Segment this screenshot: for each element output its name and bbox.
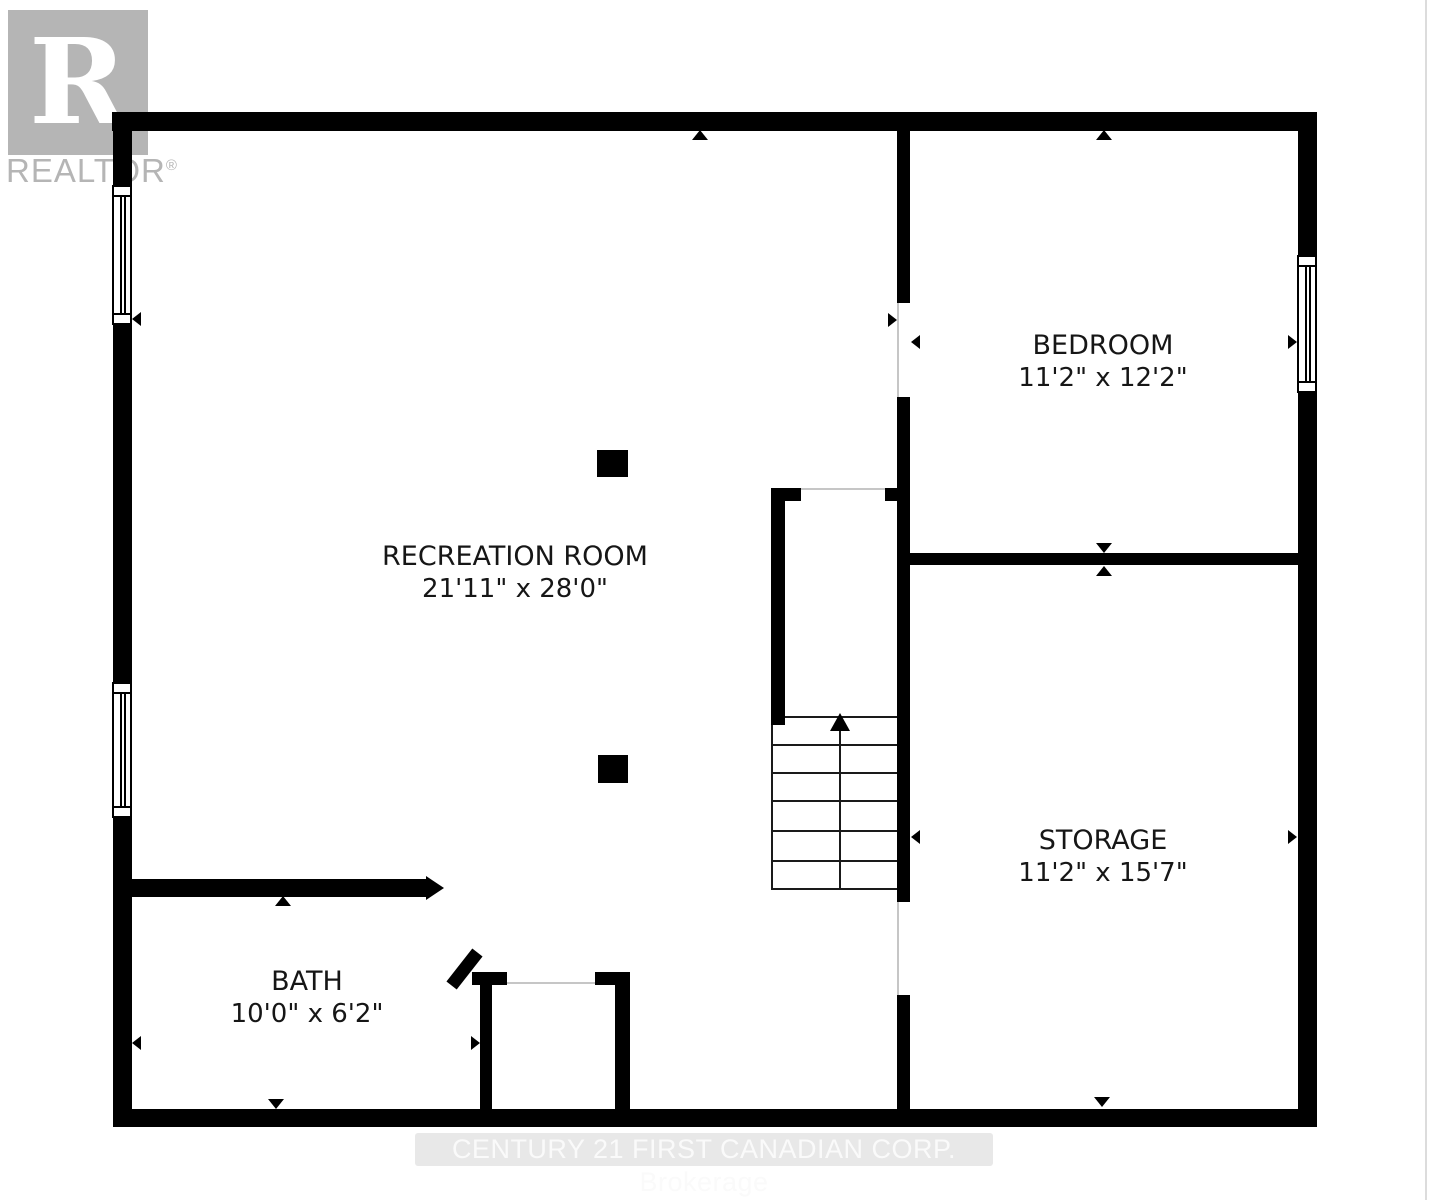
stairwell-opening	[801, 488, 885, 490]
brokerage-watermark: CENTURY 21 FIRST CANADIAN CORP. Brokerag…	[415, 1133, 993, 1166]
outer-wall-right-lower	[1298, 393, 1317, 1127]
support-column	[597, 450, 628, 477]
closet-top-right-stub	[595, 972, 630, 985]
dimension-marker-right-icon	[471, 1036, 480, 1050]
closet-right-wall	[615, 972, 630, 1109]
dimension-marker-down-icon	[268, 1099, 284, 1109]
stairwell-top-wall-right	[885, 488, 897, 501]
room-label-bath: BATH 10'0" x 6'2"	[157, 966, 457, 1030]
dimension-marker-up-icon	[275, 896, 291, 906]
dimension-marker-left-icon	[132, 312, 141, 326]
floor-plan: R REALTOR®	[0, 0, 1431, 1200]
stair-tread-line	[771, 800, 897, 802]
outer-wall-right-upper	[1298, 112, 1317, 255]
central-wall-upper	[897, 131, 910, 303]
outer-wall-left-middle	[113, 325, 132, 682]
outer-wall-top	[112, 112, 1317, 131]
window-pane-line	[124, 196, 126, 314]
window-sill-icon	[1299, 381, 1315, 383]
dimension-marker-left-icon	[132, 1036, 141, 1050]
window-sill-icon	[114, 806, 130, 808]
bath-top-wall	[131, 879, 426, 897]
dimension-marker-up-icon	[1096, 566, 1112, 576]
realtor-logo-wordmark: REALTOR®	[6, 152, 176, 190]
room-dimensions: 10'0" x 6'2"	[157, 998, 457, 1030]
stair-tread-line	[771, 860, 897, 862]
support-column	[598, 755, 628, 783]
room-dimensions: 11'2" x 12'2"	[953, 362, 1253, 394]
stair-tread-line	[771, 888, 897, 890]
stair-tread-line	[771, 744, 897, 746]
window-left-upper	[112, 185, 132, 325]
window-pane-line	[120, 693, 122, 807]
room-label-recreation: RECREATION ROOM 21'11" x 28'0"	[285, 541, 745, 605]
stair-tread-line	[771, 772, 897, 774]
dimension-marker-down-icon	[1096, 543, 1112, 553]
registered-trademark-icon: ®	[166, 157, 178, 174]
room-label-storage: STORAGE 11'2" x 15'7"	[953, 825, 1253, 889]
room-dimensions: 21'11" x 28'0"	[285, 573, 745, 605]
bath-wall-arrow-tip-icon	[426, 876, 444, 900]
stairwell-top-wall-left	[771, 488, 801, 501]
central-wall-lower	[897, 995, 910, 1109]
storage-door-opening	[897, 902, 899, 995]
outer-wall-bottom	[113, 1109, 1317, 1127]
stairs-up-arrow-icon	[830, 713, 850, 731]
outer-wall-left-upper	[113, 112, 132, 185]
dimension-marker-right-icon	[888, 313, 897, 327]
window-bedroom-right	[1297, 255, 1317, 393]
window-pane-line	[1305, 266, 1307, 382]
realtor-logo-name: REALTOR	[6, 152, 166, 189]
dimension-marker-down-icon	[1094, 1097, 1110, 1107]
image-edge-line	[1425, 0, 1427, 1200]
stair-center-divider-line	[839, 716, 841, 890]
window-pane-line	[120, 196, 122, 314]
window-sill-icon	[114, 313, 130, 315]
stairwell-left-wall	[771, 488, 785, 725]
central-wall-middle	[897, 397, 910, 902]
outer-wall-left-lower	[113, 818, 132, 1127]
room-dimensions: 11'2" x 15'7"	[953, 857, 1253, 889]
room-label-bedroom: BEDROOM 11'2" x 12'2"	[953, 330, 1253, 394]
room-name: BEDROOM	[953, 330, 1253, 362]
dimension-marker-up-icon	[1096, 130, 1112, 140]
window-pane-line	[1309, 266, 1311, 382]
stair-tread-line	[771, 830, 897, 832]
room-name: STORAGE	[953, 825, 1253, 857]
dimension-marker-right-icon	[1288, 335, 1297, 349]
stair-left-edge-line	[771, 725, 773, 890]
dimension-marker-left-icon	[911, 335, 920, 349]
bedroom-storage-divider-wall	[910, 553, 1298, 565]
room-name: RECREATION ROOM	[285, 541, 745, 573]
dimension-marker-right-icon	[1288, 830, 1297, 844]
closet-top-left-stub	[472, 972, 507, 985]
dimension-marker-left-icon	[911, 830, 920, 844]
closet-left-wall	[480, 983, 492, 1109]
bedroom-door-opening	[897, 303, 899, 397]
dimension-marker-up-icon	[692, 130, 708, 140]
window-left-lower	[112, 682, 132, 818]
room-name: BATH	[157, 966, 457, 998]
closet-opening	[507, 982, 595, 984]
window-pane-line	[124, 693, 126, 807]
